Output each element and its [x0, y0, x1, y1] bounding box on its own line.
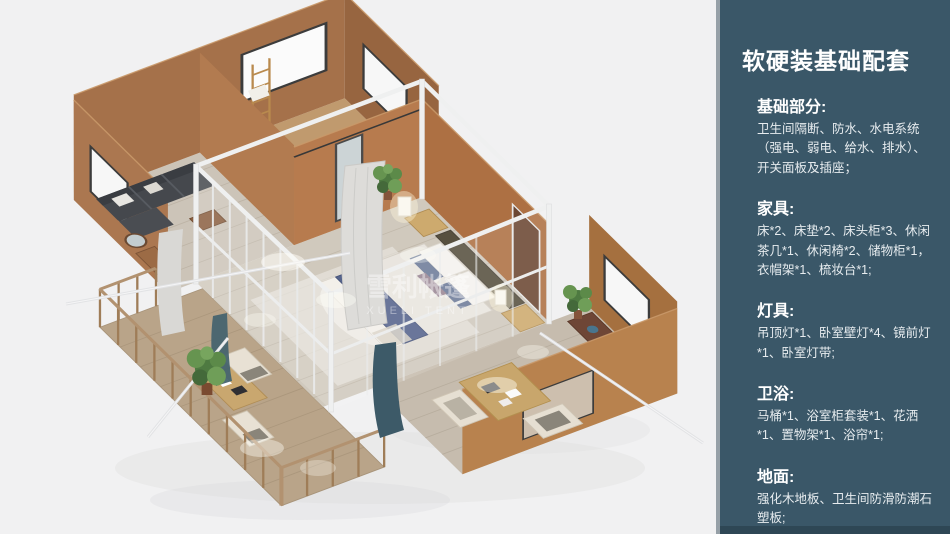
section-bathroom-heading: 卫浴: [757, 380, 932, 404]
info-panel: 软硬装基础配套 基础部分: 卫生间隔断、防水、水电系统（强电、弱电、给水、排水）… [716, 0, 950, 534]
section-basics: 基础部分: 卫生间隔断、防水、水电系统（强电、弱电、给水、排水）、开关面板及插座… [742, 93, 932, 178]
section-lighting: 灯具: 吊顶灯*1、卧室壁灯*4、镜前灯*1、卧室灯带; [742, 297, 932, 363]
section-basics-heading: 基础部分: [757, 93, 932, 117]
panel-title: 软硬装基础配套 [742, 42, 932, 76]
watermark-en: XUELI TENT [366, 305, 469, 317]
watermark-cn: 雪利帐篷 [366, 272, 471, 302]
floor-plan-render: 雪利帐篷 XUELI TENT [0, 0, 716, 534]
slide: 雪利帐篷 XUELI TENT 软硬装基础配套 基础部分: 卫生间隔断、防水、水… [0, 0, 950, 534]
section-furniture-heading: 家具: [757, 195, 932, 219]
section-furniture-body: 床*2、床垫*2、床头柜*3、休闲茶几*1、休闲椅*2、储物柜*1，衣帽架*1、… [757, 222, 932, 280]
section-flooring: 地面: 强化木地板、卫生间防滑防潮石塑板; [742, 463, 932, 529]
section-basics-body: 卫生间隔断、防水、水电系统（强电、弱电、给水、排水）、开关面板及插座； [757, 120, 932, 178]
section-lighting-heading: 灯具: [757, 297, 932, 321]
section-furniture: 家具: 床*2、床垫*2、床头柜*3、休闲茶几*1、休闲椅*2、储物柜*1，衣帽… [742, 195, 932, 280]
watermark: 雪利帐篷 XUELI TENT [366, 272, 471, 317]
panel-bottom-strip [720, 526, 950, 534]
section-flooring-body: 强化木地板、卫生间防滑防潮石塑板; [757, 490, 932, 529]
section-lighting-body: 吊顶灯*1、卧室壁灯*4、镜前灯*1、卧室灯带; [757, 324, 932, 363]
panel-edge-strip [716, 0, 720, 534]
section-bathroom-body: 马桶*1、浴室柜套装*1、花洒*1、置物架*1、浴帘*1; [757, 407, 932, 446]
section-flooring-heading: 地面: [757, 463, 932, 487]
section-bathroom: 卫浴: 马桶*1、浴室柜套装*1、花洒*1、置物架*1、浴帘*1; [742, 380, 932, 446]
floor-plan-svg: 雪利帐篷 XUELI TENT [0, 0, 716, 534]
